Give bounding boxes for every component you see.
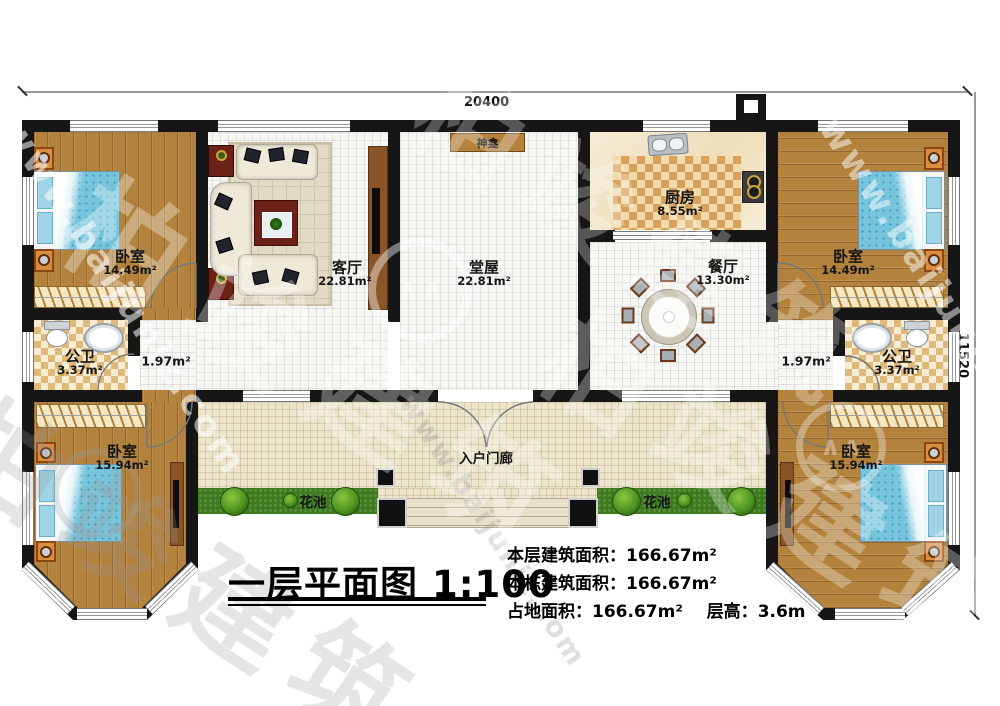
title-underline-thin — [228, 604, 486, 606]
room-area-kitchen: 8.55m² — [657, 204, 702, 218]
stat-footprint-area: 占地面积：166.67m² 层高：3.6m — [507, 597, 806, 622]
stat-label: 本层建筑面积： — [507, 546, 626, 566]
stat-value: 166.67m² — [592, 602, 683, 622]
stat-label: 本栋建筑面积： — [507, 574, 626, 594]
room-area-bedroom-tl: 14.49m² — [103, 263, 156, 277]
room-label-porch: 入户门廊 — [459, 447, 513, 467]
room-area-living: 22.81m² — [318, 274, 371, 288]
room-area-hall: 22.81m² — [457, 274, 510, 288]
room-area-dining: 13.30m² — [696, 273, 749, 287]
room-label-flower-l: 花池 — [300, 491, 327, 511]
title-underline — [228, 597, 486, 601]
room-area-bedroom-tr: 14.49m² — [821, 263, 874, 277]
room-area-bedroom-br: 15.94m² — [829, 458, 882, 472]
stat-label: 占地面积： — [507, 602, 592, 622]
room-label-flower-r: 花池 — [644, 491, 671, 511]
stat-floor-area: 本层建筑面积：166.67m² — [507, 541, 717, 566]
stat-label: 层高： — [707, 602, 758, 622]
stat-value: 166.67m² — [626, 574, 717, 594]
stat-value: 3.6m — [758, 602, 806, 622]
room-area-bath-l: 3.37m² — [57, 363, 102, 377]
floorplan-canvas: 神龛 — [0, 0, 1000, 706]
room-area-bath-r: 3.37m² — [874, 363, 919, 377]
stat-value: 166.67m² — [626, 546, 717, 566]
room-area-bedroom-bl: 15.94m² — [95, 458, 148, 472]
room-area-corridor-l: 1.97m² — [141, 354, 190, 369]
stat-building-area: 本栋建筑面积：166.67m² — [507, 569, 717, 594]
room-area-corridor-r: 1.97m² — [781, 354, 830, 369]
